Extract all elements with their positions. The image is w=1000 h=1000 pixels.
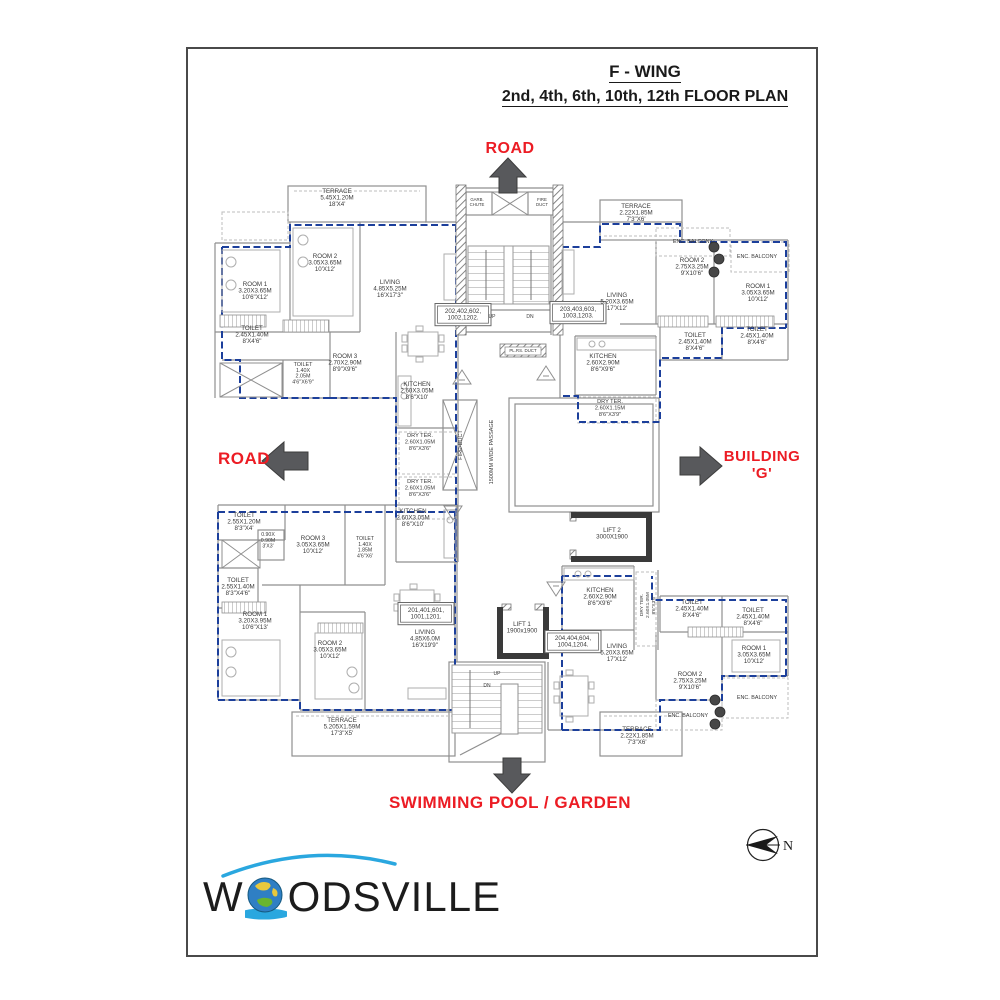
plan-label: ENC. BALCONY [668, 713, 709, 719]
plan-label-line: 10'X12' [748, 296, 768, 303]
plan-label: TERRACE5.205X1.59M17'3"X5' [324, 717, 361, 737]
plan-label: TERRACE2.22X1.85M7'3"X6' [619, 203, 652, 223]
building-g-line2: 'G' [720, 465, 804, 482]
globe-icon [245, 874, 287, 920]
woodsville-logo: W ODSVILLE [203, 852, 443, 937]
plan-label-line: 8'X4'6" [743, 620, 762, 627]
plan-label: TOILET2.55X1.20M8'3"X4' [227, 512, 260, 532]
plan-label: DRY TER.2.60X1.05M8'6"X3'6" [405, 433, 436, 452]
flat-number-box: 202,402,602,1002,1202. [435, 304, 491, 326]
drawing-title-wing: F - WING [480, 62, 810, 82]
plan-label: GARB.CHUTE [470, 197, 485, 207]
plan-label-line: 4'6"X6' [357, 553, 373, 559]
plan-label-line: 8'X4'6" [685, 345, 704, 352]
logo-letter-w: W [203, 876, 244, 918]
plan-label-line: 10'X12' [315, 266, 335, 273]
plan-label: ROOM 13.20X3.95M10'6"X13' [238, 611, 271, 631]
plan-label-line: 1001,1201. [411, 614, 442, 621]
plan-label: TOILET2.45X1.40M8'X4'6" [736, 607, 769, 627]
building-g-label: BUILDING 'G' [720, 448, 804, 483]
plan-label-line: 8'6"X9'6" [591, 366, 616, 373]
plan-label: DRY TER.2.60X1.15M8'6"X3'9" [595, 399, 626, 418]
plan-label-line: ENC. BALCONY [737, 254, 778, 260]
plan-label-line: DRY TER. [639, 594, 645, 616]
arrow-right-building-g [680, 447, 722, 485]
plan-label: LIFT 23000X1900 [596, 527, 628, 541]
plan-label: TOILET2.45X1.40M8'X4'6" [740, 326, 773, 346]
plan-label: LIFT 11900x1900 [507, 621, 538, 635]
plan-label: KITCHEN2.60X2.90M8'6"X9'6" [586, 353, 619, 373]
plan-label-line: 17'X12' [607, 656, 627, 663]
plan-label-line: 7'3"X6' [627, 739, 646, 746]
plan-label-line: 17'3"X5' [331, 730, 353, 737]
plan-label-line: DRY TER. [597, 399, 623, 405]
plan-label: PL.RS. DUCT [509, 348, 537, 353]
plan-label-line: 8'3"X4'6" [226, 590, 251, 597]
plan-label: KITCHEN2.60X2.90M8'6"X9'6" [583, 587, 616, 607]
plan-label: TERRACE2.22X1.85M7'3"X6' [620, 726, 653, 746]
plan-label-line: 10'6"X13' [242, 624, 268, 631]
plan-label: ROOM 22.75X3.25M9'X10'6" [675, 257, 708, 277]
road-label-left: ROAD [206, 449, 282, 469]
plan-label-line: 8'X4'6" [682, 612, 701, 619]
plan-label: ENC. BALCONY [737, 254, 778, 260]
flat-number-box: 201,401,601,1001,1201. [398, 603, 454, 625]
plan-label-line: UP [494, 671, 502, 677]
plan-label: FIRE-DUCT [458, 430, 464, 460]
swimming-pool-garden-label: SWIMMING POOL / GARDEN [375, 793, 645, 813]
plan-label-line: DRY TER. [407, 433, 433, 439]
north-label: N [783, 839, 793, 854]
plan-label: TOILET2.45X1.40M8'X4'6" [235, 325, 268, 345]
plan-label: DRY TER.2.60X1.05M8'6"X3'6" [639, 592, 657, 618]
plan-label-line: 8'3"X4' [234, 525, 253, 532]
plan-label-line: 18'X4' [329, 201, 346, 208]
plan-label: ROOM 32.70X2.90M8'9"X9'6" [328, 353, 361, 373]
plan-label: ENC. BALCONY [737, 695, 778, 701]
arrow-down-swimming-pool [494, 758, 530, 793]
plan-label: ENC. BALCONY [673, 239, 714, 245]
plan-label-line: 8'6"X3'6" [409, 446, 431, 452]
flat-number-box: 203,403,603,1003,1203. [550, 302, 606, 324]
plan-label: 1500MM WIDE PASSAGE [489, 419, 495, 484]
plan-label-line: 1500MM WIDE PASSAGE [489, 419, 495, 484]
plan-label: TOILET2.55X1.40M8'3"X4'6" [221, 577, 254, 597]
plan-label-line: 10'X12' [303, 548, 323, 555]
plan-label-line: 16'X17'3" [377, 292, 403, 299]
plan-label-line: 2.60X1.15M [595, 406, 626, 412]
plan-label-line: 2.60X1.05M [405, 440, 436, 446]
dining-table [402, 326, 444, 362]
plan-label-line: 10'X12' [320, 653, 340, 660]
plan-label-line: UP [489, 314, 497, 320]
plan-label-line: 9'X10'6" [679, 684, 701, 691]
plan-label-line: 8'9"X9'6" [333, 366, 358, 373]
plan-label: ROOM 23.05X3.65M10'X12' [313, 640, 346, 660]
plan-label: ROOM 13.05X3.65M10'X12' [741, 283, 774, 303]
plan-label-line: PL.RS. DUCT [509, 348, 537, 353]
plan-label: KITCHEN2.60X3.05M8'6"X10' [396, 508, 429, 528]
stairs-top [468, 246, 549, 304]
plan-label: LIVING4.85X5.25M16'X17'3" [373, 279, 406, 299]
plan-label-line: ENC. BALCONY [673, 239, 714, 245]
flat-number-box: 204,404,604,1004,1204. [545, 631, 601, 653]
plan-label: ROOM 13.20X3.65M10'6"X12' [238, 281, 271, 301]
plan-label-line: 4'6"X6'9" [292, 379, 314, 385]
plan-label: TERRACE5.45X1.20M18'X4' [320, 188, 353, 208]
plan-label: TOILET2.45X1.40M8'X4'6" [675, 599, 708, 619]
plan-label: LIVING5.20X3.65M17'X12' [600, 643, 633, 663]
plan-label-line: CHUTE [470, 202, 485, 207]
floor-plan-sheet: F - WING 2nd, 4th, 6th, 10th, 12th FLOOR… [0, 0, 1000, 1000]
plan-label-line: 8'6"X9'6" [588, 600, 613, 607]
plan-label: ROOM 13.05X3.65M10'X12' [737, 645, 770, 665]
logo-letters-rest: ODSVILLE [288, 876, 501, 918]
plan-label-line: 1002,1202. [448, 315, 479, 322]
plan-label: ROOM 33.05X3.65M10'X12' [296, 535, 329, 555]
plan-label: DN [483, 683, 491, 689]
plan-label-line: 10'6"X12' [242, 294, 268, 301]
drawing-title-floors: 2nd, 4th, 6th, 10th, 12th FLOOR PLAN [480, 88, 810, 106]
north-compass: N [746, 830, 793, 861]
plan-label-line: 16'X19'9" [412, 642, 438, 649]
dining-table [554, 670, 594, 722]
plan-label-line: DN [526, 314, 534, 320]
plan-label-line: 3000X1900 [596, 534, 628, 541]
plan-label-line: 8'X4'6" [242, 338, 261, 345]
plan-label-line: 2.60X1.05M [645, 592, 651, 618]
plan-label-line: 8'6"X3'6" [409, 492, 431, 498]
plan-label-line: 2.60X1.05M [405, 486, 436, 492]
plan-label-line: 7'3"X6' [626, 216, 645, 223]
plan-label-line: 8'6"X3'9" [599, 412, 621, 418]
plan-label-line: 8'6"X3'6" [651, 595, 657, 614]
plan-label-line: 8'6"X10' [402, 521, 424, 528]
plan-label-line: ENC. BALCONY [668, 713, 709, 719]
title-block: F - WING 2nd, 4th, 6th, 10th, 12th FLOOR… [480, 62, 810, 106]
plan-label: FIREDUCT [536, 197, 548, 207]
plan-label: TOILET1.40X2.05M4'6"X6'9" [292, 362, 314, 385]
building-g-line1: BUILDING [720, 448, 804, 465]
plan-label: TOILET2.45X1.40M8'X4'6" [678, 332, 711, 352]
plan-label: DN [526, 314, 534, 320]
plan-label-line: FIRE-DUCT [458, 430, 464, 460]
plan-label-line: 17'X12' [607, 305, 627, 312]
plan-label-line: 1004,1204. [558, 642, 589, 649]
plan-label-line: 8'6"X10' [406, 394, 428, 401]
plan-label-line: ENC. BALCONY [737, 695, 778, 701]
plan-label-line: 3'X3' [262, 544, 273, 550]
plan-label-line: DUCT [536, 202, 548, 207]
plan-label-line: DRY TER. [407, 479, 433, 485]
plan-label-line: 1003,1203. [563, 313, 594, 320]
plan-label-line: DN [483, 683, 491, 689]
plan-label: ROOM 22.75X3.25M9'X10'6" [673, 671, 706, 691]
plan-label-line: 9'X10'6" [681, 270, 703, 277]
plan-label: 0.90X0.90M3'X3' [261, 532, 276, 550]
plan-label-line: 1900x1900 [507, 628, 538, 635]
logo-text: W ODSVILLE [203, 874, 501, 920]
plan-label: UP [489, 314, 497, 320]
plan-label: ROOM 23.05X3.65M10'X12' [308, 253, 341, 273]
road-label-top: ROAD [468, 140, 552, 158]
plan-label: TOILET1.40X1.85M4'6"X6' [356, 536, 375, 559]
plan-label-line: 10'X12' [744, 658, 764, 665]
plan-label-line: 8'X4'6" [747, 339, 766, 346]
plan-label: DRY TER.2.60X1.05M8'6"X3'6" [405, 479, 436, 498]
plan-label: UP [494, 671, 502, 677]
plan-label: LIVING4.85X6.0M16'X19'9" [410, 629, 440, 649]
plan-label: KITCHEN2.60X3.05M8'6"X10' [400, 381, 433, 401]
